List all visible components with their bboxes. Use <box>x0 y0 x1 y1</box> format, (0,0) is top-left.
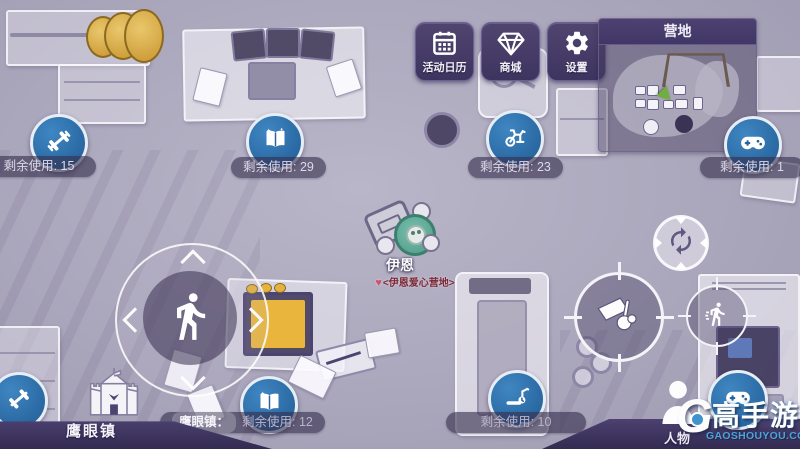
watermark-dot <box>690 412 705 427</box>
reticle-tick <box>716 277 719 290</box>
exercise-bike-icon <box>501 123 529 156</box>
triangle-up-icon <box>675 262 687 269</box>
run-icon <box>704 301 730 332</box>
book-icon <box>262 126 289 158</box>
reticle-tick <box>716 342 719 355</box>
town-label: 鹰眼镇 <box>66 420 176 441</box>
triangle-right-icon <box>655 237 662 249</box>
town-study-usage-text: 剩余使用: 12 <box>242 415 313 429</box>
desk-monitor <box>299 28 336 61</box>
bike-usage-text: 剩余使用: 23 <box>480 160 551 174</box>
arcade-usage-pill: 剩余使用: 1 <box>700 157 800 178</box>
refresh-button[interactable] <box>653 215 709 271</box>
game-viewport: 活动日历 商城 设置 营地 剩余使用: 15 <box>0 0 800 449</box>
minimap-poi <box>673 85 686 95</box>
triangle-down-icon <box>675 217 687 224</box>
bike-usage-pill: 剩余使用: 23 <box>468 157 563 178</box>
player-character <box>362 196 446 258</box>
study-usage-pill: 剩余使用: 29 <box>231 157 326 178</box>
furniture-shelf-right <box>756 56 800 112</box>
gem-icon <box>496 25 526 61</box>
reticle-tick <box>618 262 621 280</box>
town-button[interactable]: 鹰眼镇 <box>82 368 146 425</box>
activity-calendar-button[interactable]: 活动日历 <box>415 22 474 81</box>
shop-label: 商城 <box>500 61 522 75</box>
refresh-icon <box>666 226 696 261</box>
triangle-left-icon <box>700 237 707 249</box>
paper-sheet <box>364 327 400 358</box>
minimap-pond <box>675 115 693 133</box>
minimap-tent <box>662 53 730 87</box>
gym-usage-text: 剩余使用: 15 <box>4 159 75 173</box>
study-usage-text: 剩余使用: 29 <box>243 160 314 174</box>
minimap-poi <box>635 99 646 108</box>
treadmill-usage-pill: 剩余使用: 10 <box>446 412 586 433</box>
minimap-title: 营地 <box>599 19 756 45</box>
reticle-tick <box>618 354 621 372</box>
activity-calendar-label: 活动日历 <box>423 61 467 75</box>
dumbbell-icon <box>5 385 33 418</box>
camp-tag-text: <伊恩爱心营地> <box>383 278 455 289</box>
player-hand <box>376 236 395 255</box>
watermark: G 高手游 GAOSHOUYOU.COM <box>676 390 800 449</box>
desk-rug <box>248 62 296 100</box>
minimap-poi <box>675 99 688 109</box>
calendar-icon <box>431 25 458 61</box>
minimap-poi <box>635 86 646 95</box>
barbell-plate <box>124 9 164 63</box>
shop-button[interactable]: 商城 <box>481 22 540 81</box>
arcade-usage-text: 剩余使用: 1 <box>720 160 784 174</box>
furniture-punching-bag <box>424 112 460 148</box>
settings-label: 设置 <box>566 61 588 75</box>
chevron-right-icon <box>238 307 263 332</box>
player-name: 伊恩 <box>320 255 480 275</box>
minimap-flag-poi <box>693 97 703 110</box>
reticle-tick <box>678 315 691 318</box>
reticle-tick <box>564 316 582 319</box>
watermark-brand: 高手游 <box>712 394 799 434</box>
gym-usage-pill: 剩余使用: 15 <box>0 156 96 177</box>
camp-pin-icon: ♥ <box>375 277 382 289</box>
camp-tag: ♥<伊恩爱心营地> <box>330 274 500 289</box>
minimap-poi <box>647 99 659 110</box>
treadmill-icon <box>503 383 531 416</box>
treadmill-usage-text: 剩余使用: 10 <box>481 415 552 429</box>
weight-disc <box>572 366 594 388</box>
watermark-url: GAOSHOUYOU.COM <box>706 430 800 442</box>
joystick-knob[interactable] <box>143 271 237 365</box>
minimap-fan-poi <box>643 119 659 135</box>
write-hands-icon <box>593 293 645 342</box>
desk-monitor <box>231 28 268 61</box>
dumbbell-icon <box>45 127 73 160</box>
reticle-tick <box>656 316 674 319</box>
interact-reticle-button[interactable] <box>574 272 664 362</box>
chevron-down-icon <box>180 365 205 390</box>
run-icon <box>164 290 216 347</box>
desk-monitor <box>266 28 300 58</box>
reticle-tick <box>743 315 756 318</box>
furniture-shelf-top-left <box>58 64 146 124</box>
player-hand <box>422 234 440 252</box>
sprint-reticle-button[interactable] <box>686 285 748 347</box>
desk-lamp-dot <box>274 283 286 293</box>
gear-icon <box>563 25 591 61</box>
